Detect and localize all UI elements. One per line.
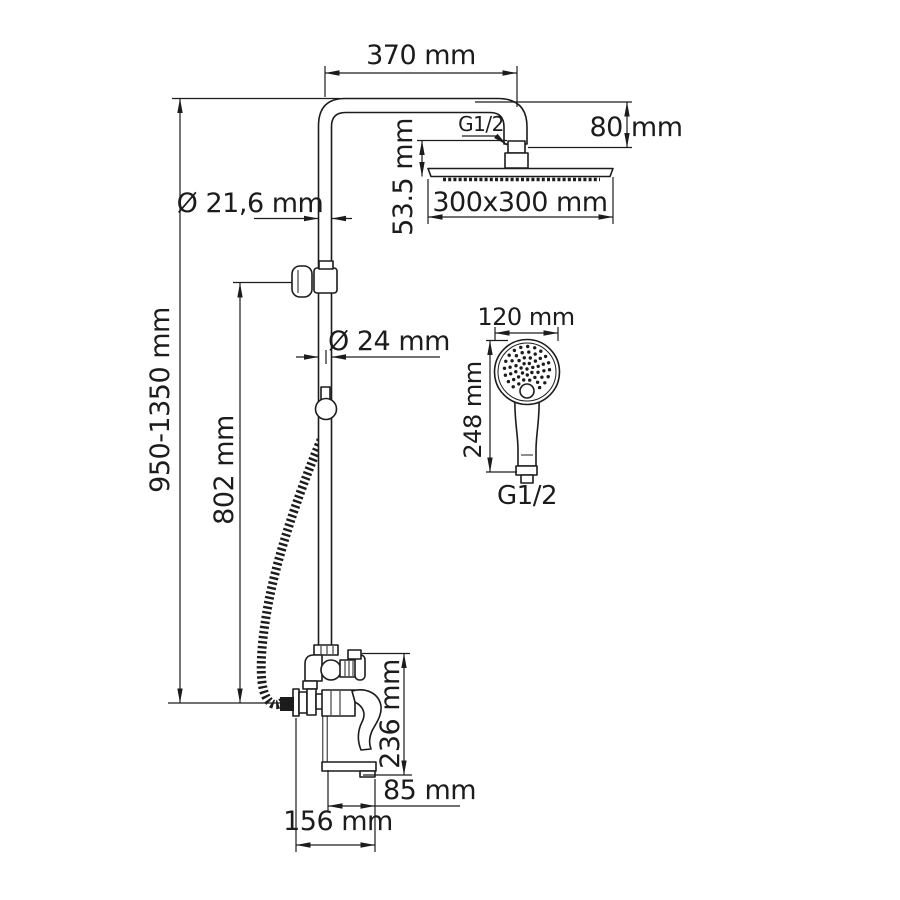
- dim-handshower-diameter: 120 mm: [477, 303, 574, 331]
- dim-handshower-connection: G1/2: [497, 481, 557, 511]
- dimension-labels: 370 mm 80 mm G1/2 53.5 mm 300x300 mm Ø 2…: [145, 40, 683, 837]
- mode-button: [520, 384, 534, 398]
- dim-spout-reach: 85 mm: [383, 775, 476, 806]
- overhead-shower: [428, 141, 613, 180]
- hose-nipple: [280, 697, 294, 711]
- riser-nut: [314, 645, 338, 655]
- hand-shower: [495, 340, 560, 484]
- mixer-joint: [321, 660, 341, 680]
- dim-overall-height: 950-1350 mm: [145, 307, 176, 493]
- dim-bracket-height: 802 mm: [209, 415, 240, 525]
- dim-head-size: 300x300 mm: [432, 187, 607, 218]
- dim-mixer-height: 236 mm: [375, 659, 406, 769]
- dim-arm-reach: 370 mm: [366, 40, 476, 71]
- dim-riser-diameter: Ø 21,6 mm: [177, 188, 324, 219]
- shower-system-diagram: 370 mm 80 mm G1/2 53.5 mm 300x300 mm Ø 2…: [0, 0, 900, 900]
- dim-head-connection: G1/2: [458, 112, 504, 136]
- technical-drawing-page: 370 mm 80 mm G1/2 53.5 mm 300x300 mm Ø 2…: [0, 0, 900, 900]
- dim-head-height: 53.5 mm: [388, 118, 419, 236]
- mixer-elbow: [305, 655, 322, 681]
- mixer: [280, 645, 381, 777]
- dim-mixer-reach: 156 mm: [283, 806, 393, 837]
- wall-bracket: [292, 261, 337, 297]
- handshower-handle: [515, 397, 539, 466]
- head-plate: [428, 169, 613, 177]
- dim-column-diameter: Ø 24 mm: [328, 326, 450, 357]
- head-connector-body: [505, 153, 528, 168]
- diverter-knob: [340, 650, 365, 680]
- dim-handshower-length: 248 mm: [459, 361, 487, 458]
- head-connector-nut: [508, 141, 525, 153]
- dim-arm-drop: 80 mm: [589, 112, 682, 143]
- mixer-body: [322, 690, 355, 716]
- wall-eccentric: [293, 689, 323, 716]
- handshower-connector: [516, 466, 537, 475]
